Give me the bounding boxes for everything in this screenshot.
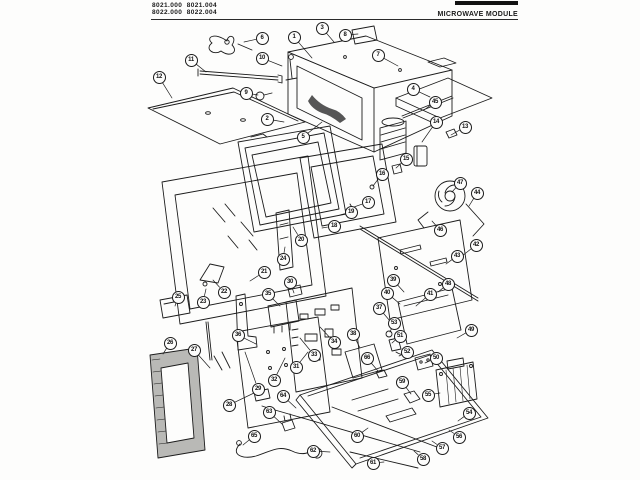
callout-63: 63 (263, 406, 276, 419)
callout-40: 40 (381, 287, 394, 300)
callout-60: 60 (351, 430, 364, 443)
exploded-view-line-art (0, 0, 640, 480)
callout-17: 17 (362, 196, 375, 209)
callout-27: 27 (188, 344, 201, 357)
callout-48: 48 (442, 278, 455, 291)
callout-3: 3 (316, 22, 329, 35)
callout-16: 16 (376, 168, 389, 181)
callout-58: 58 (417, 453, 430, 466)
callout-25: 25 (172, 291, 185, 304)
callout-8: 8 (339, 29, 352, 42)
callout-38: 38 (347, 328, 360, 341)
callout-29: 29 (252, 383, 265, 396)
callout-10: 10 (256, 52, 269, 65)
callout-24: 24 (277, 253, 290, 266)
callout-5: 5 (297, 131, 310, 144)
callout-36: 36 (232, 329, 245, 342)
callout-39: 39 (387, 274, 400, 287)
callout-15: 15 (400, 153, 413, 166)
callout-65: 65 (248, 430, 261, 443)
callout-50: 50 (430, 352, 443, 365)
callout-52: 52 (401, 346, 414, 359)
callout-22: 22 (218, 286, 231, 299)
magnetron-group (380, 118, 457, 174)
callout-2: 2 (261, 113, 274, 126)
callout-21: 21 (258, 266, 271, 279)
callout-31: 31 (290, 361, 303, 374)
latch-parts (200, 210, 293, 360)
diagram-page: 8021.000 8021.004 8022.000 8022.004 MICR… (0, 0, 640, 480)
callout-62: 62 (307, 445, 320, 458)
callout-11: 11 (185, 54, 198, 67)
callout-7: 7 (372, 49, 385, 62)
callout-57: 57 (436, 442, 449, 455)
callout-45: 45 (429, 96, 442, 109)
callout-35: 35 (262, 288, 275, 301)
callout-13: 13 (459, 121, 472, 134)
callout-19: 19 (345, 206, 358, 219)
tray-panel (148, 88, 305, 144)
transformer (436, 358, 477, 407)
callout-37: 37 (373, 302, 386, 315)
callout-47: 47 (454, 177, 467, 190)
callout-14: 14 (430, 116, 443, 129)
callout-43: 43 (451, 250, 464, 263)
callout-41: 41 (424, 288, 437, 301)
callout-9: 9 (240, 87, 253, 100)
callout-66: 66 (361, 352, 374, 365)
callout-23: 23 (197, 296, 210, 309)
callout-12: 12 (153, 71, 166, 84)
callout-1: 1 (288, 31, 301, 44)
callout-6: 6 (256, 32, 269, 45)
callout-34: 34 (328, 336, 341, 349)
callout-61: 61 (367, 457, 380, 470)
cavity-assembly (288, 26, 456, 152)
callout-42: 42 (470, 239, 483, 252)
callout-28: 28 (223, 399, 236, 412)
callout-51: 51 (394, 330, 407, 343)
callout-26: 26 (164, 337, 177, 350)
door-choke-frames (238, 126, 396, 238)
callout-56: 56 (453, 431, 466, 444)
callout-44: 44 (471, 187, 484, 200)
callout-18: 18 (328, 220, 341, 233)
fan-blade (209, 36, 252, 54)
callout-30: 30 (284, 276, 297, 289)
callout-32: 32 (268, 374, 281, 387)
callout-54: 54 (463, 407, 476, 420)
callout-33: 33 (308, 349, 321, 362)
callout-4: 4 (407, 83, 420, 96)
callout-59: 59 (396, 376, 409, 389)
outer-door (150, 348, 205, 458)
callout-46: 46 (434, 224, 447, 237)
callout-49: 49 (465, 324, 478, 337)
callout-55: 55 (422, 389, 435, 402)
callout-20: 20 (295, 234, 308, 247)
callout-53: 53 (388, 317, 401, 330)
callout-64: 64 (277, 390, 290, 403)
